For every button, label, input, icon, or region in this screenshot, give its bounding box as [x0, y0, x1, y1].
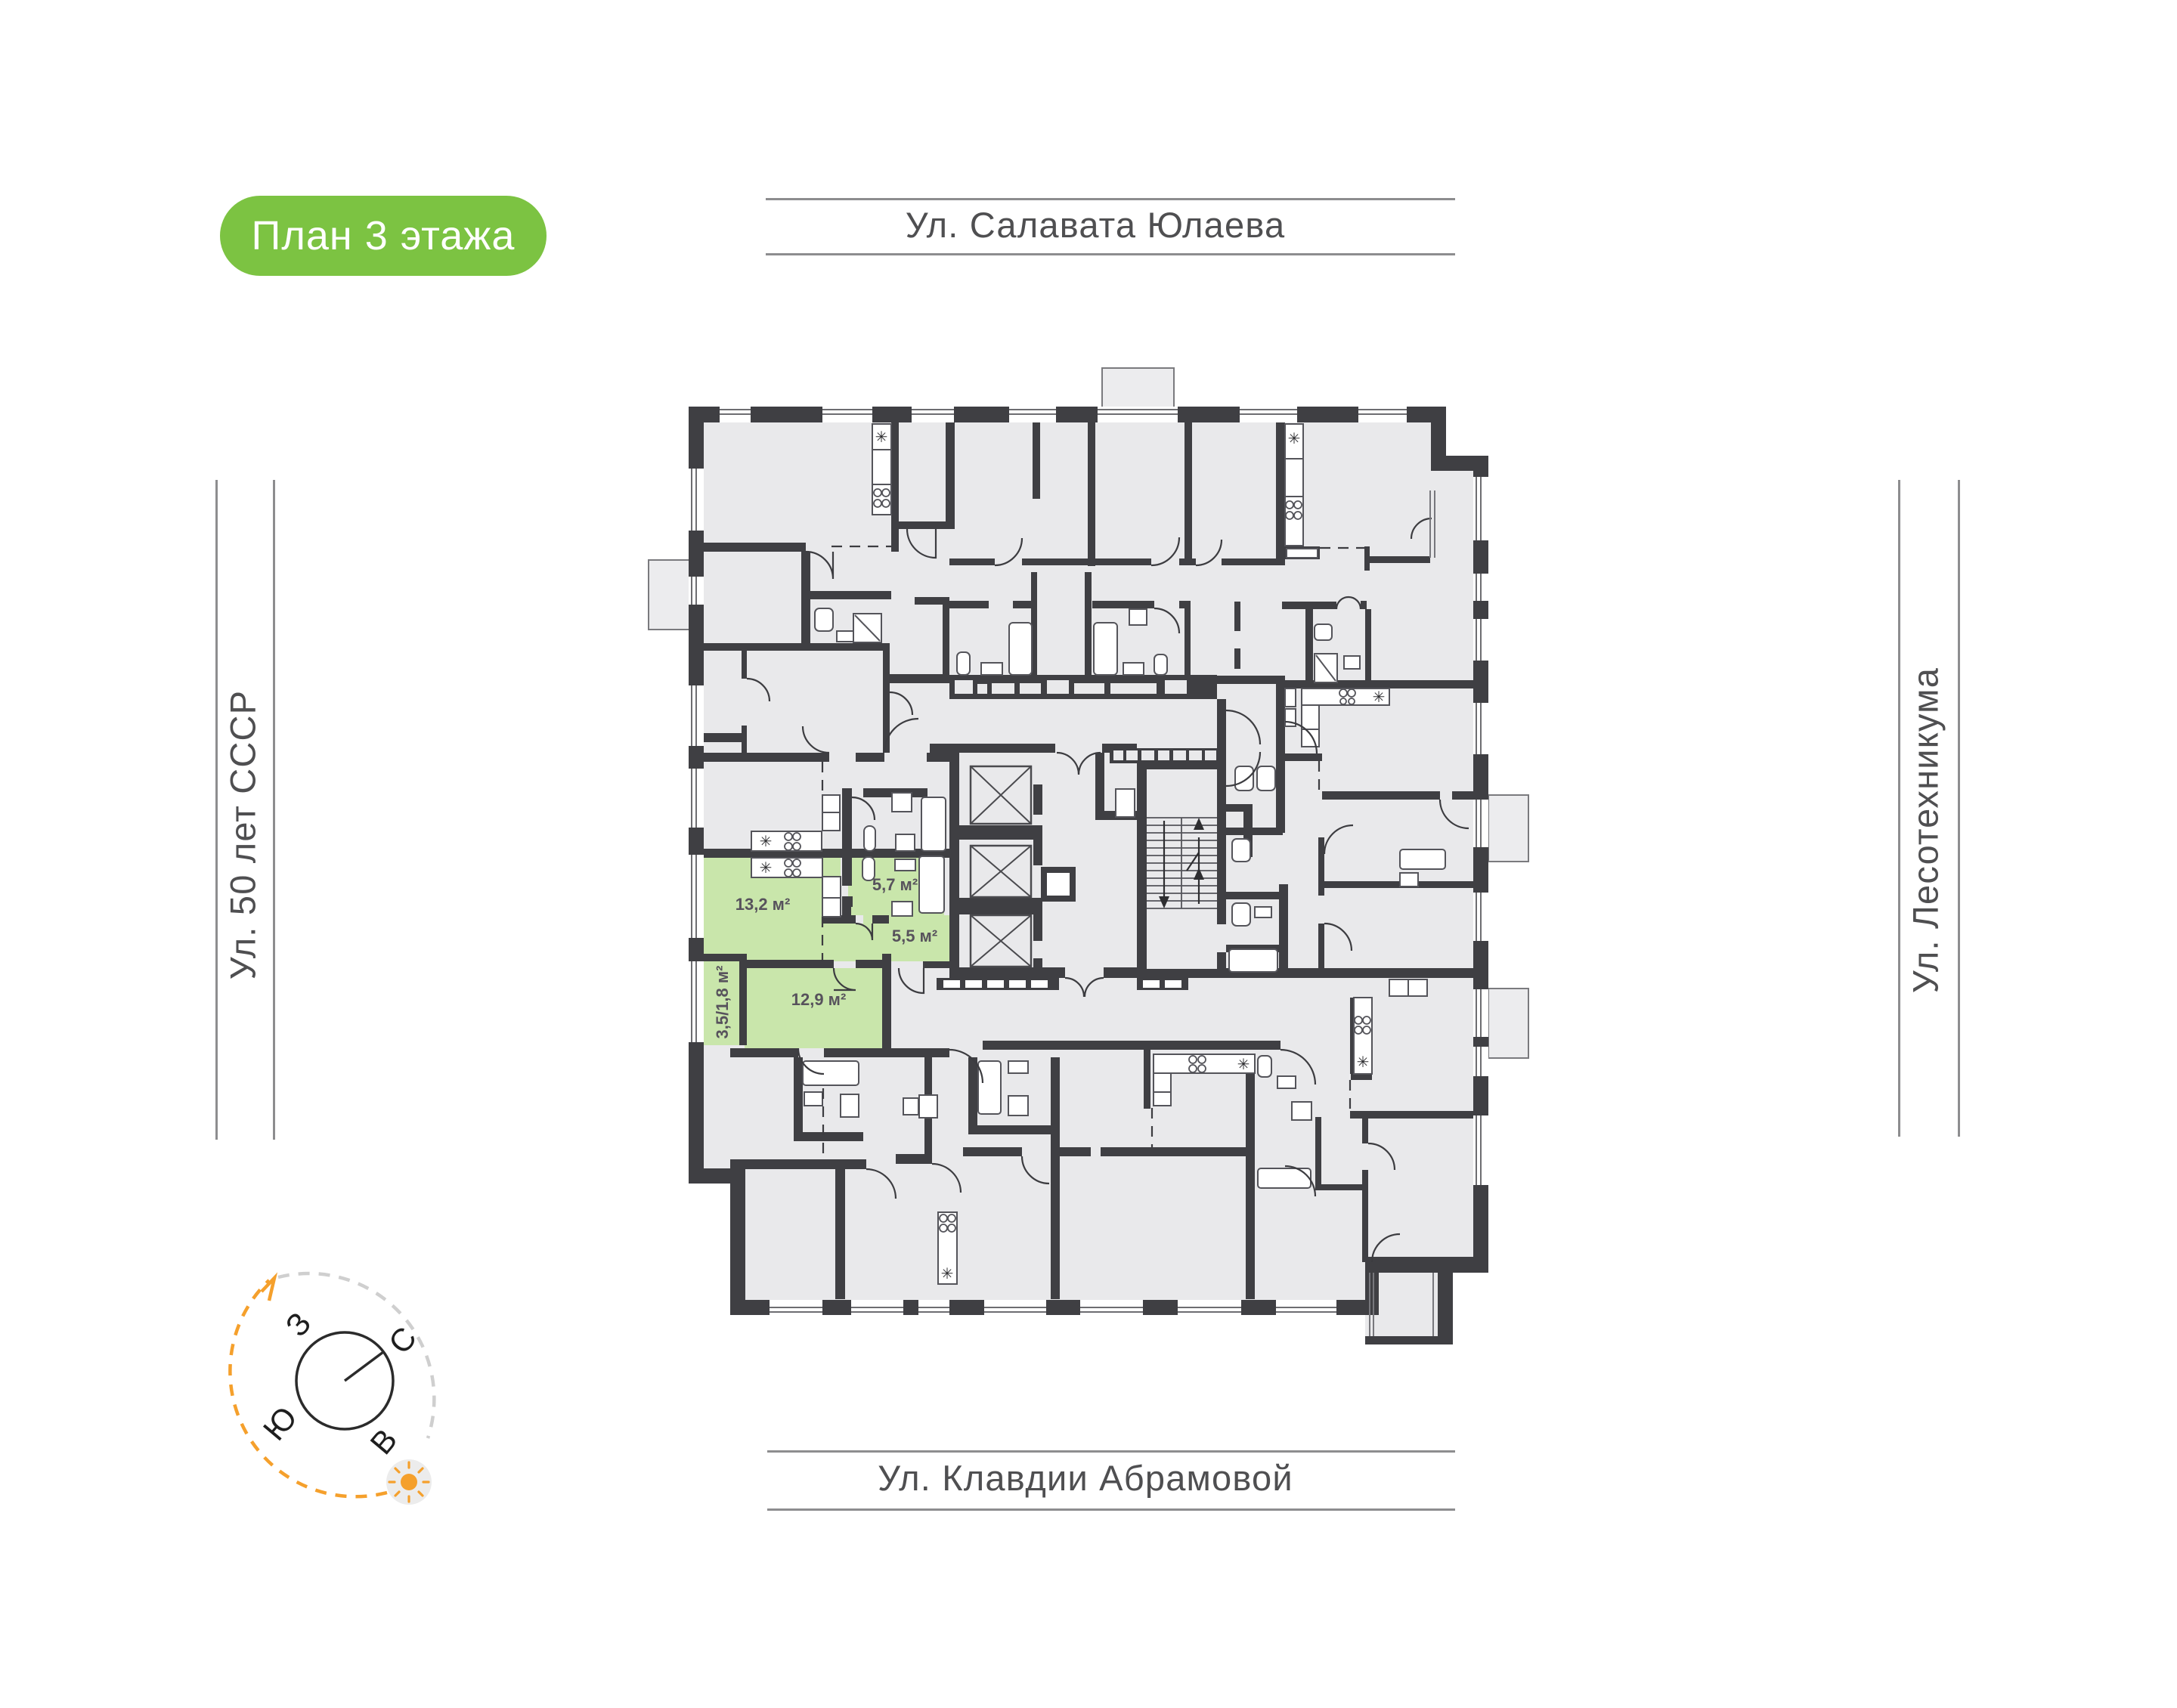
svg-text:З: З	[278, 1305, 317, 1343]
svg-text:5,7 м²: 5,7 м²	[872, 875, 918, 894]
svg-text:13,2 м²: 13,2 м²	[735, 895, 791, 914]
svg-text:12,9 м²: 12,9 м²	[791, 990, 847, 1009]
svg-text:✳: ✳	[1237, 1057, 1250, 1073]
svg-text:✳: ✳	[941, 1266, 954, 1283]
svg-text:3,5/1,8 м²: 3,5/1,8 м²	[713, 966, 732, 1039]
svg-text:✳: ✳	[1288, 431, 1301, 447]
svg-text:✳: ✳	[760, 860, 773, 877]
svg-text:✳: ✳	[1357, 1054, 1370, 1071]
svg-text:✳: ✳	[875, 429, 888, 446]
svg-text:С: С	[382, 1320, 424, 1360]
svg-text:✳: ✳	[760, 834, 773, 850]
svg-text:✳: ✳	[1373, 689, 1386, 706]
svg-text:В: В	[363, 1422, 404, 1461]
svg-text:Ю: Ю	[256, 1400, 304, 1447]
svg-text:5,5 м²: 5,5 м²	[892, 927, 937, 945]
